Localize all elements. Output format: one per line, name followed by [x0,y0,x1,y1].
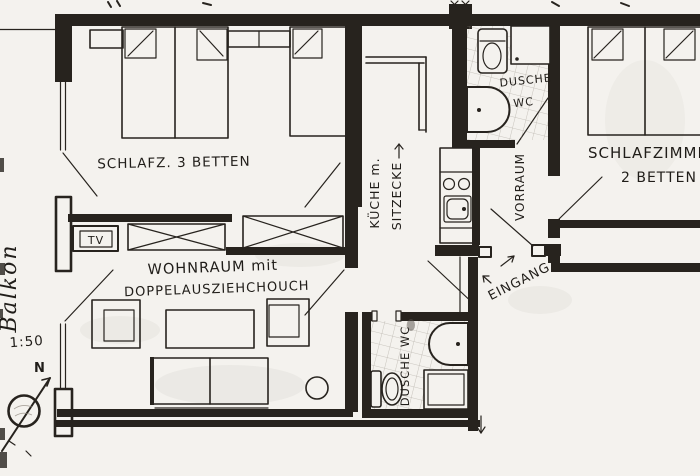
door-swing [65,270,113,321]
arrow-ne-icon [501,256,514,266]
compass-circle [9,396,40,427]
scale-label: 1:50 [9,333,44,351]
living-room-label-1: WOHNRAUM mit [147,258,278,279]
wall-top [55,14,700,26]
pillow-icon [293,29,322,58]
bedroom2-label-2: 2 BETTEN [621,170,697,186]
arrow-nw-icon [483,276,491,283]
window [61,82,66,150]
bedroom2-label-1: SCHLAFZIMMER [588,144,700,162]
wall-stub [548,219,560,228]
bath-bottom-label: DUSCHE WC [398,326,412,407]
tv-label: TV [87,234,104,247]
wall-kitchen-bath [452,14,467,148]
wall-outer-bottom [56,420,480,427]
north-label: N [34,361,46,376]
bedroom3-furniture [90,27,347,138]
sink-icon [444,196,471,222]
stove-burner-icon [444,179,455,190]
kitchen-label-2: SITZECKE [389,162,404,231]
living-room-label-2: DOPPELAUSZIEHCHOUCH [124,279,310,300]
kitchen-label-1: KÜCHE m. [366,157,382,228]
shower-tray [424,370,468,409]
bathroom-bottom [371,319,468,409]
bed [290,27,347,136]
balcony-label: Balkon [0,243,22,333]
wall-bedroom2-bottom [560,220,700,228]
plant-icon [306,377,328,399]
door-jamb [532,245,545,256]
couch-back [150,357,154,405]
toilet-icon [478,29,507,73]
armchair [267,299,309,346]
wall-bath2-left [362,312,371,417]
compass-icon: N [2,361,50,451]
hall-label: VORRAUM [513,153,527,221]
floor-plan-page: TV [0,0,700,476]
door-jamb [396,311,401,321]
wall-pillar [55,14,72,82]
bedroom3-label: SCHLAFZ. 3 BETTEN [97,154,251,173]
door-swing [305,270,344,315]
wall-living-bottom [57,409,353,417]
wall-entrance [435,245,479,256]
wall-bath2-bottom [362,409,478,418]
wall-pillar [56,197,71,271]
wall-post [548,228,560,238]
wall-bath2-right [468,257,478,431]
wall-entrance-right [545,244,561,256]
door-swing [305,163,340,207]
bath-top-label-2: WC [513,95,535,110]
stove-burner-icon [459,179,470,190]
shower-icon [467,87,510,132]
window [61,324,66,388]
door-swing [63,153,97,196]
wall-living-right-upper [345,206,358,268]
tv-unit: TV [73,226,118,251]
floor-plan-drawing: TV [0,0,700,476]
nightstand [90,30,123,48]
wall-bedroom-living [68,214,232,222]
wall-bath-bottom [467,140,515,148]
kitchen-arrow-icon [395,144,403,158]
washbasin-icon [429,323,468,365]
door-jamb [479,247,491,257]
wall-living-right-lower [345,312,358,412]
corner-bench [366,57,426,132]
wall-outer-right [551,263,700,272]
door-jamb [372,311,377,321]
coffee-table [166,310,254,348]
door-swing [559,177,602,219]
